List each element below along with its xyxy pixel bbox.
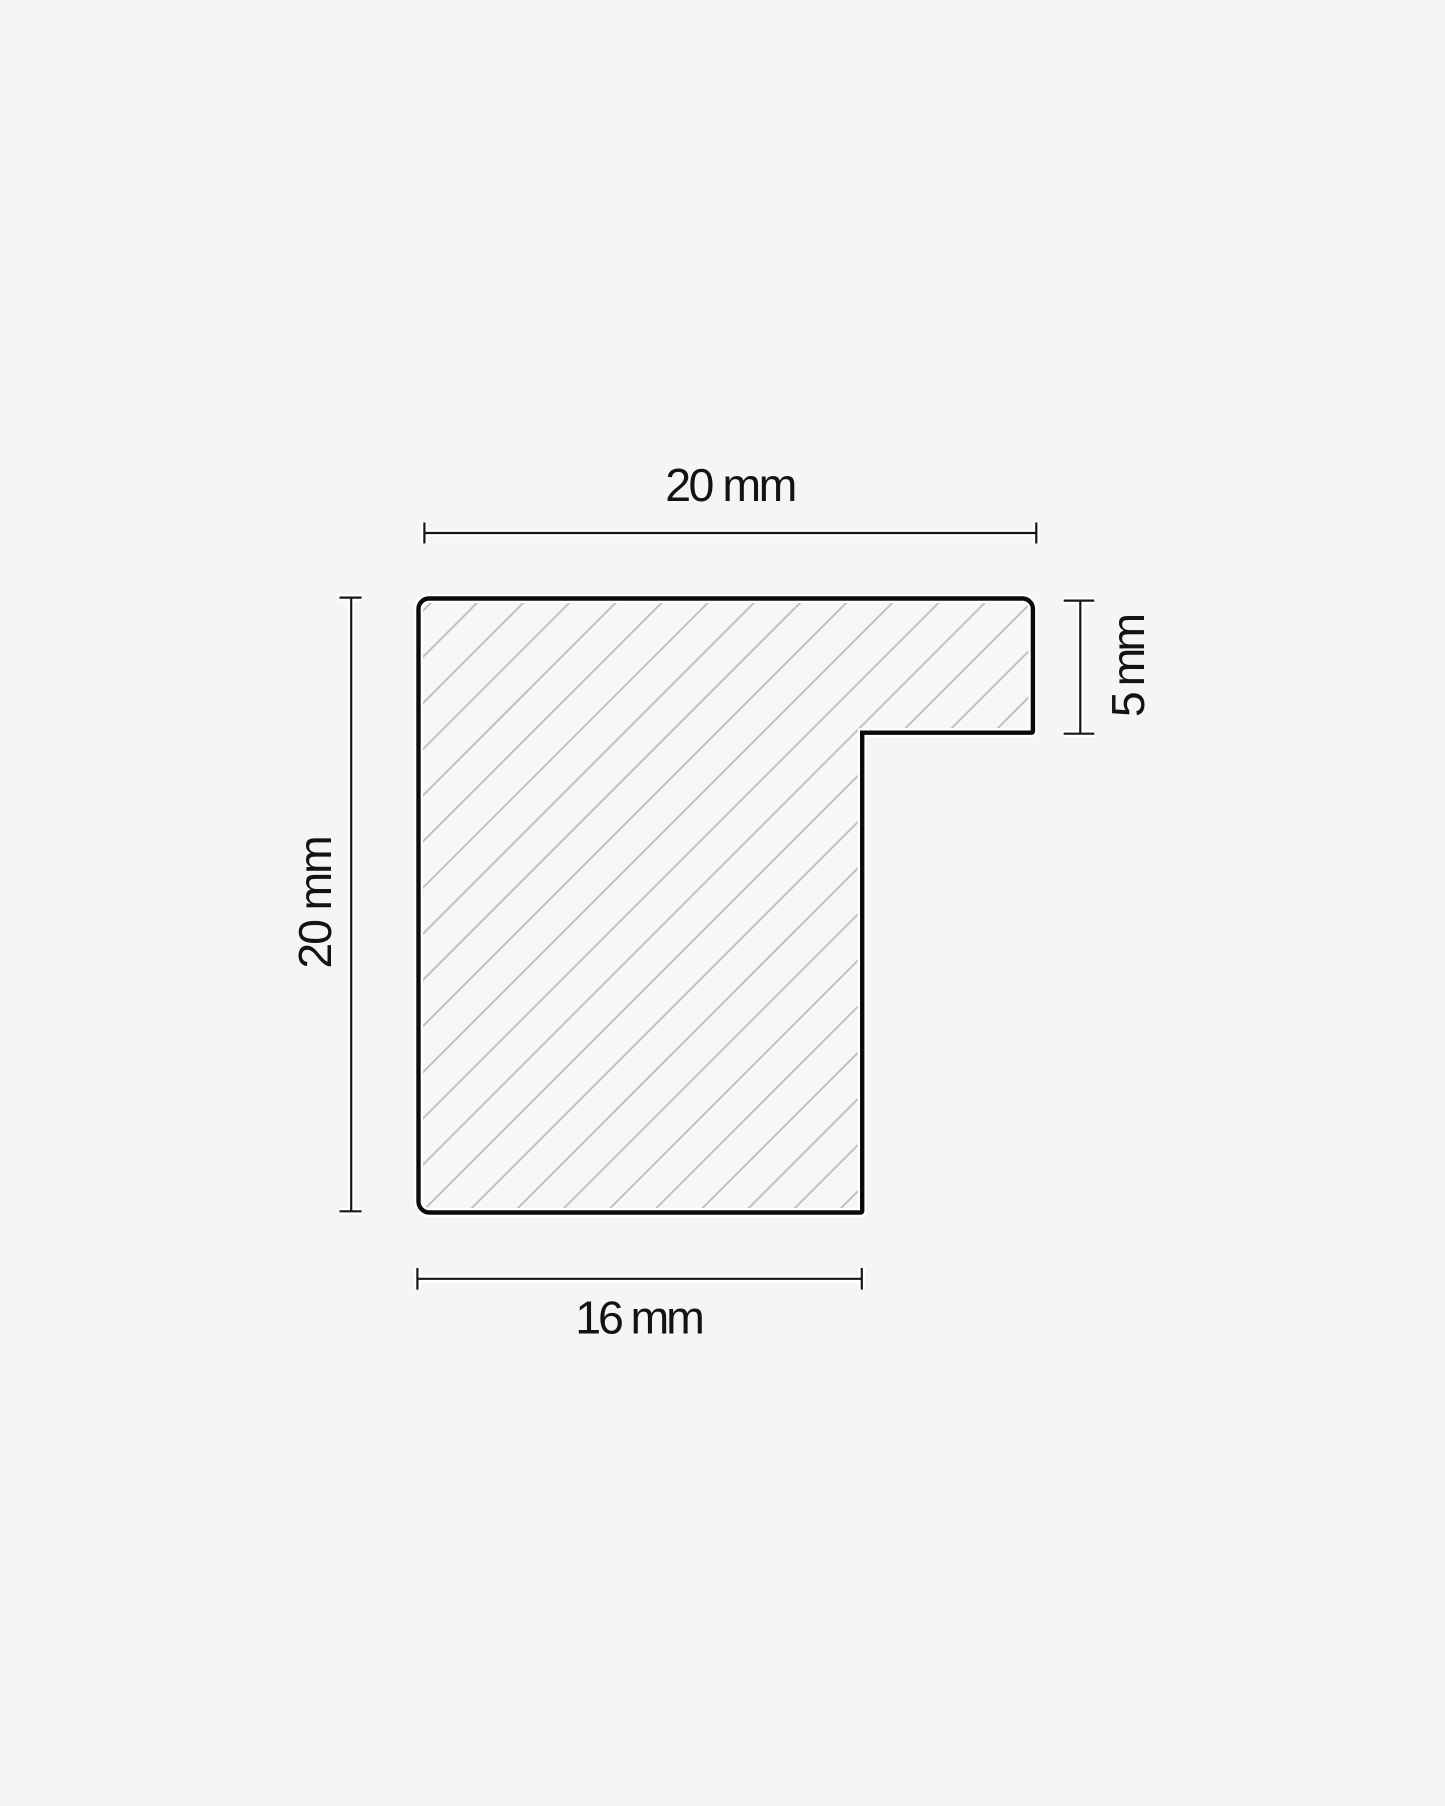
svg-text:20 mm: 20 mm [665, 459, 795, 511]
svg-text:16 mm: 16 mm [575, 1291, 702, 1343]
svg-text:20 mm: 20 mm [289, 837, 341, 968]
svg-text:5 mm: 5 mm [1102, 616, 1154, 718]
